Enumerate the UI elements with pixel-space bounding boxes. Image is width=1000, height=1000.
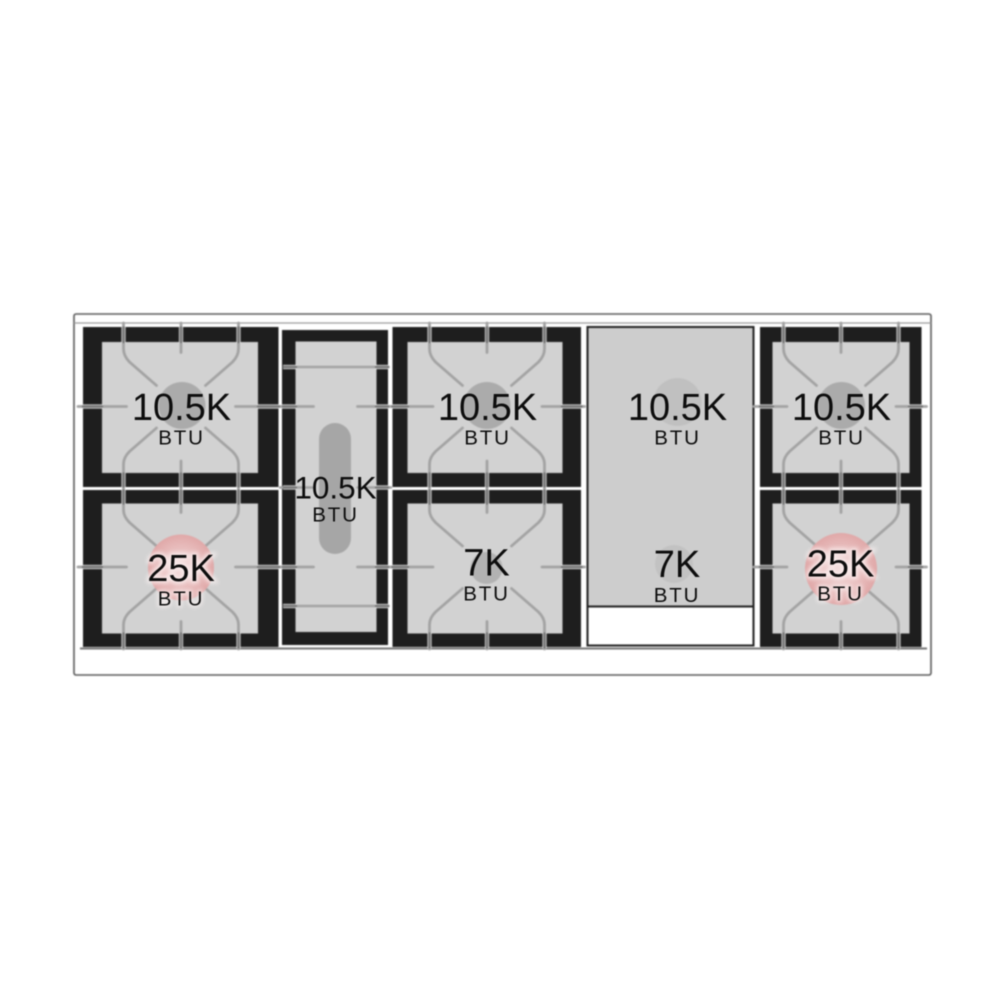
svg-text:BTU: BTU bbox=[654, 427, 700, 450]
svg-text:BTU: BTU bbox=[158, 427, 204, 450]
svg-text:BTU: BTU bbox=[817, 583, 863, 606]
svg-text:10.5K: 10.5K bbox=[628, 387, 727, 429]
svg-text:7K: 7K bbox=[463, 543, 509, 585]
svg-text:25K: 25K bbox=[147, 548, 215, 590]
svg-text:BTU: BTU bbox=[463, 583, 509, 606]
svg-text:10.5K: 10.5K bbox=[132, 387, 231, 429]
svg-text:BTU: BTU bbox=[312, 504, 358, 527]
svg-text:BTU: BTU bbox=[464, 427, 510, 450]
svg-text:10.5K: 10.5K bbox=[792, 387, 891, 429]
svg-text:BTU: BTU bbox=[654, 584, 700, 607]
svg-text:BTU: BTU bbox=[158, 588, 204, 611]
svg-text:10.5K: 10.5K bbox=[438, 387, 537, 429]
svg-text:10.5K: 10.5K bbox=[294, 470, 376, 506]
svg-text:7K: 7K bbox=[654, 544, 700, 586]
svg-text:25K: 25K bbox=[807, 544, 875, 586]
svg-text:BTU: BTU bbox=[818, 427, 864, 450]
